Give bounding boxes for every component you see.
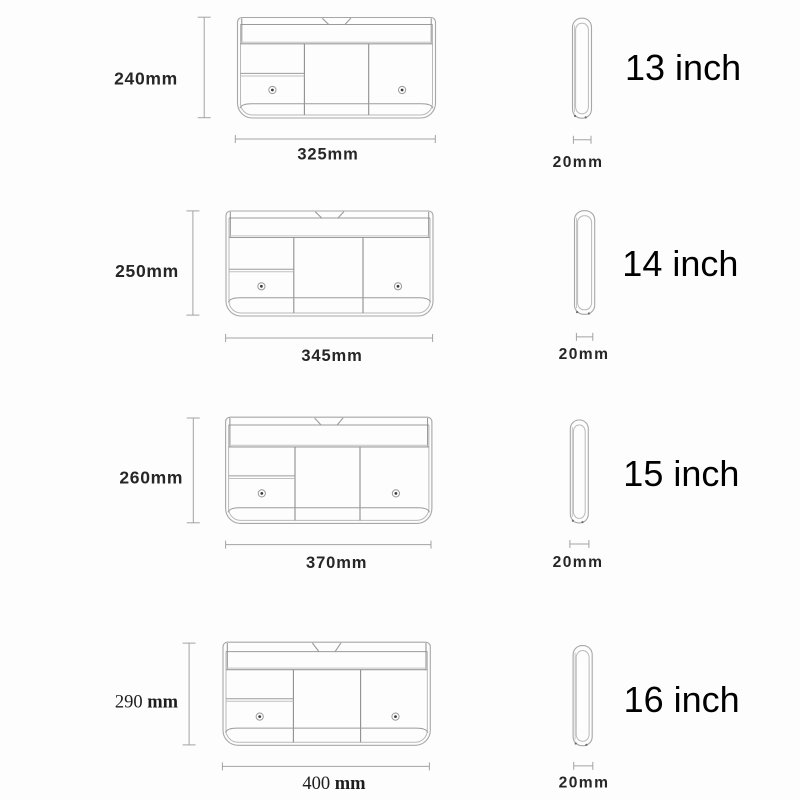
svg-text:20mm: 20mm (553, 154, 604, 171)
svg-text:325mm: 325mm (297, 146, 358, 164)
svg-text:400 mm: 400 mm (302, 774, 366, 794)
svg-text:14 inch: 14 inch (622, 243, 738, 284)
svg-text:16 inch: 16 inch (624, 679, 740, 720)
svg-text:260mm: 260mm (119, 467, 183, 487)
svg-text:250mm: 250mm (115, 261, 179, 281)
svg-text:345mm: 345mm (301, 347, 362, 365)
svg-text:20mm: 20mm (559, 346, 610, 363)
svg-text:13 inch: 13 inch (625, 47, 741, 88)
svg-text:290 mm: 290 mm (115, 693, 179, 713)
svg-text:15 inch: 15 inch (623, 453, 739, 494)
svg-text:240mm: 240mm (114, 69, 178, 89)
svg-text:370mm: 370mm (306, 554, 367, 572)
svg-text:20mm: 20mm (559, 775, 610, 792)
svg-text:20mm: 20mm (553, 554, 604, 571)
